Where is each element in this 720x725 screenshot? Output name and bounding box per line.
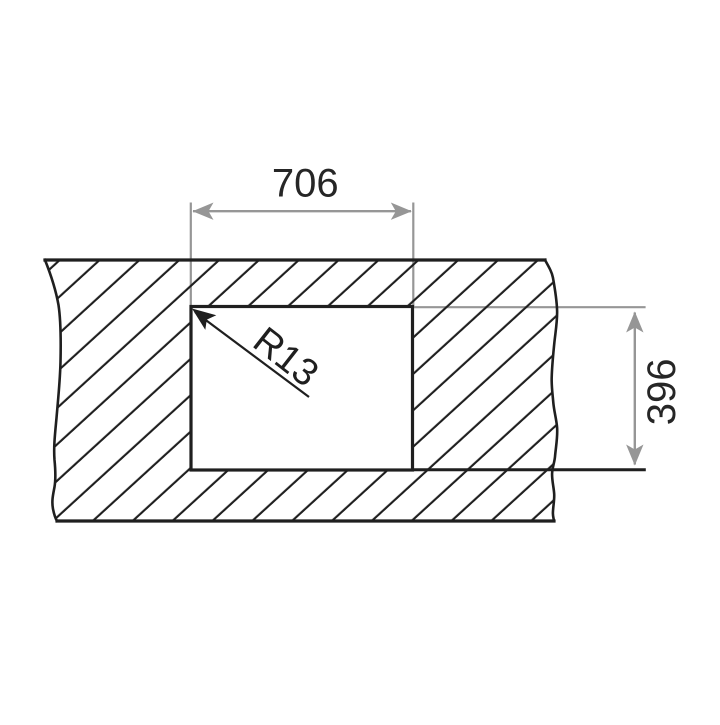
svg-text:706: 706 [272, 162, 339, 206]
svg-text:396: 396 [640, 359, 684, 426]
